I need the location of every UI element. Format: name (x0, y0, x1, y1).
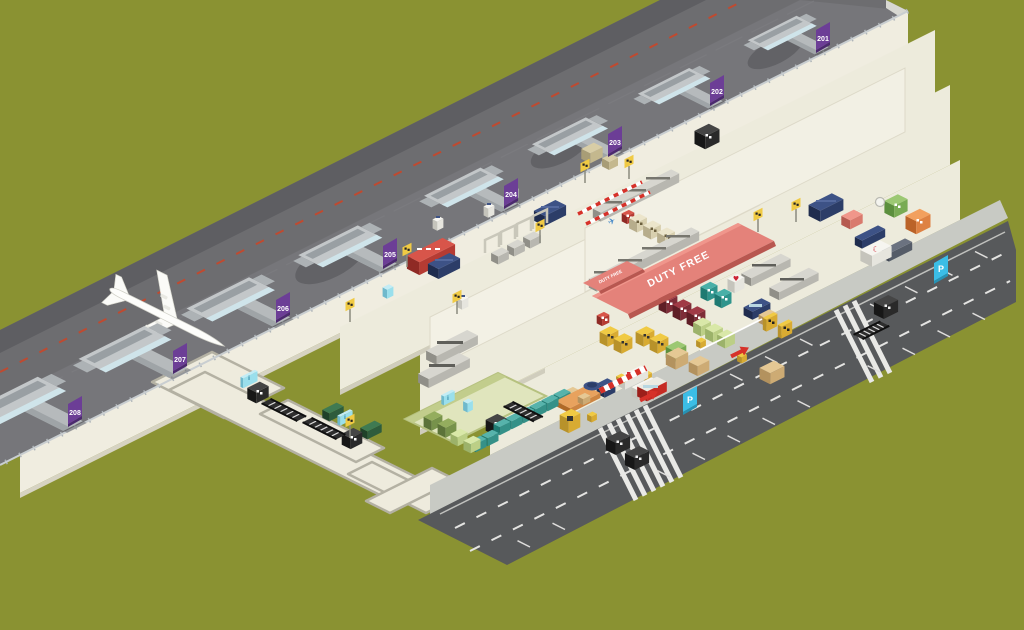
gate-label: 208 (69, 410, 81, 417)
round-sign (876, 198, 885, 207)
info-sign-icon: i (248, 375, 250, 382)
baggage-carousel (584, 382, 601, 391)
gate-label: 204 (505, 192, 517, 199)
parking-label: P (938, 264, 944, 274)
gate-label: 207 (174, 357, 186, 364)
map-canvas: DUTY FREE DUTY FREE ✈ ♥ ☾ i i i 201 202 … (0, 0, 1024, 630)
airport-map: DUTY FREE DUTY FREE ✈ ♥ ☾ i i i 201 202 … (0, 0, 1024, 630)
water-cooler (463, 399, 473, 413)
parking-label: P (687, 395, 693, 405)
gate-label: 202 (711, 89, 723, 96)
gate-label: 206 (277, 306, 289, 313)
medical-crescent-icon: ☾ (872, 245, 879, 254)
gate-label: 205 (384, 252, 396, 259)
gate-label: 203 (609, 140, 621, 147)
gate-label: 201 (817, 36, 829, 43)
pharmacy-heart-icon: ♥ (733, 275, 739, 283)
